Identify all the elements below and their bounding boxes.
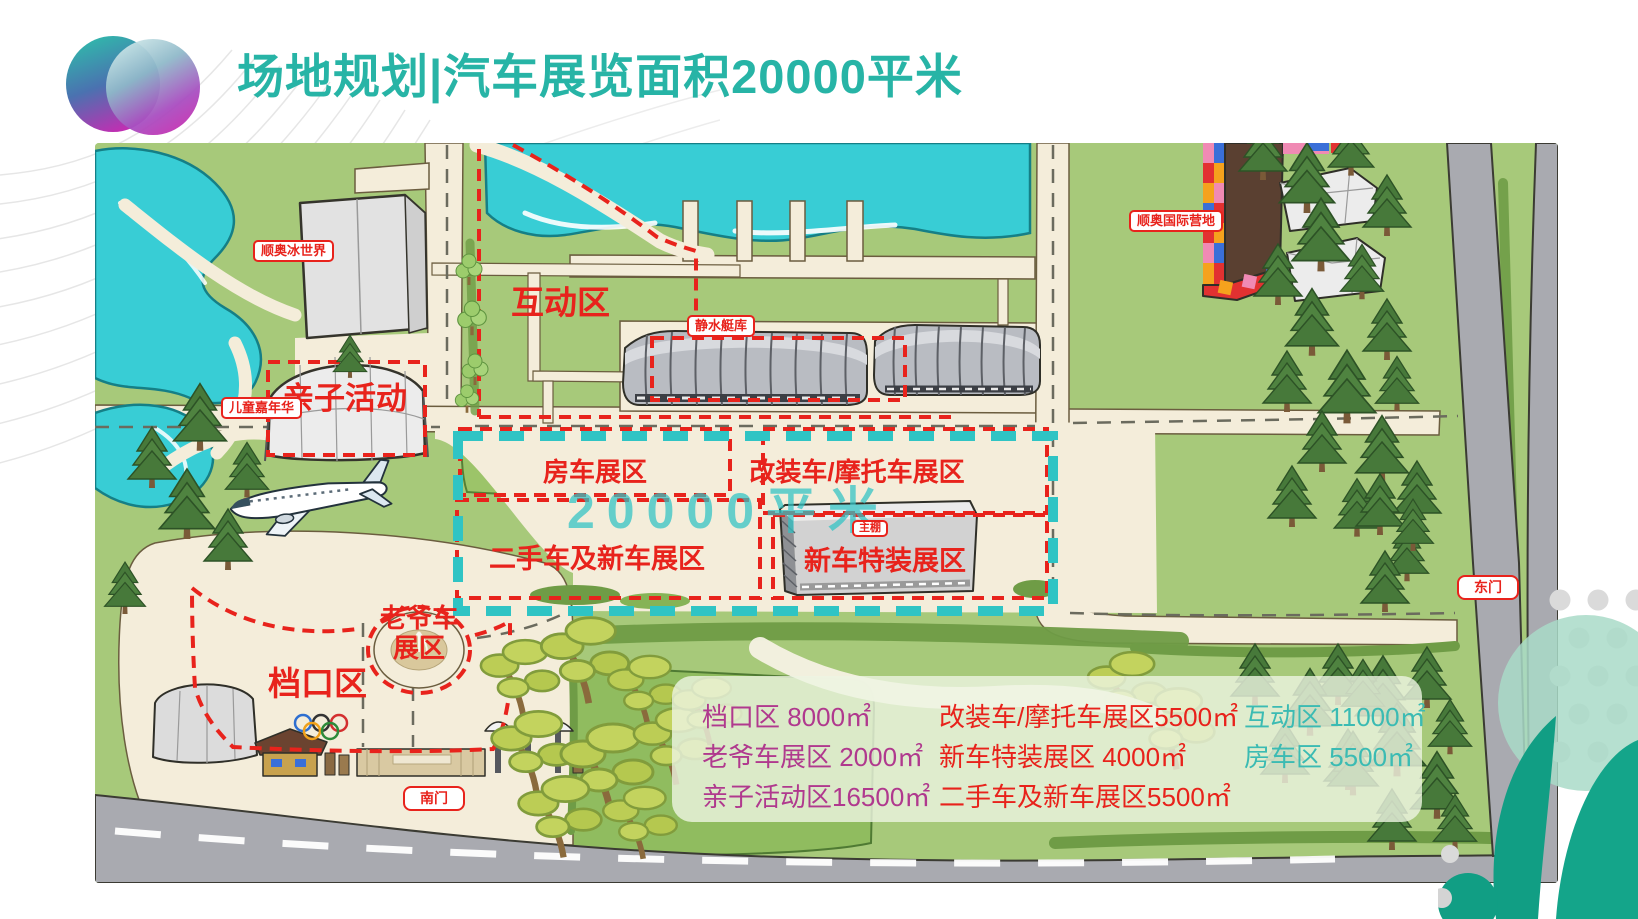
green-blob-1 (530, 585, 620, 605)
badge-intl-camp: 顺奥国际营地 (1129, 210, 1223, 232)
legend-item: 新车特装展区 4000㎡ (939, 737, 1238, 777)
badge-south-gate: 南门 (403, 786, 465, 811)
legend-column-teal: 互动区 11000㎡ 房车区 5500㎡ (1244, 697, 1426, 777)
badge-main-shed: 主棚 (852, 520, 888, 537)
badge-boathouse: 静水艇库 (687, 315, 755, 337)
page-title: 场地规划|汽车展览面积20000平米 (237, 38, 963, 107)
badge-ice-world: 顺奥冰世界 (253, 240, 334, 262)
legend-item: 亲子活动区16500㎡ (702, 777, 930, 817)
badge-east-gate: 东门 (1457, 575, 1519, 600)
zone-label-classic-car-line1: 老爷车 (380, 605, 458, 632)
legend-item: 档口区 8000㎡ (702, 697, 930, 737)
zone-label-modified-moto: 改装车/摩托车展区 (749, 459, 964, 486)
vertical-path-left (425, 143, 463, 417)
zone-label-classic-car-line2: 展区 (393, 635, 445, 662)
zone-label-rv: 房车展区 (543, 459, 647, 486)
brand-logo (66, 34, 216, 136)
legend-item: 互动区 11000㎡ (1244, 697, 1426, 737)
entrance-tent (153, 684, 257, 762)
road-right-edge (1528, 143, 1558, 883)
entrance-crates (325, 753, 335, 775)
logo-circle-light-magenta (106, 39, 200, 135)
legend-item: 老爷车展区 2000㎡ (702, 737, 930, 777)
legend-panel: 档口区 8000㎡ 老爷车展区 2000㎡ 亲子活动区16500㎡ 改装车/摩托… (672, 676, 1422, 822)
boathouse-left (623, 331, 867, 405)
zone-label-used-new: 二手车及新车展区 (489, 545, 705, 573)
zone-label-new-special: 新车特装展区 (804, 547, 966, 575)
zone-label-interactive: 互动区 (511, 286, 610, 321)
slide: { "header": { "title": "场地规划|汽车展览面积20000… (0, 0, 1638, 919)
site-map: 20000平米 互动区 亲子活动 房车展区 改装车/摩托车展区 二手车及新车展区… (95, 143, 1558, 883)
path-branch (355, 163, 429, 193)
legend-item: 改装车/摩托车展区5500㎡ (939, 697, 1238, 737)
legend-column-purple: 档口区 8000㎡ 老爷车展区 2000㎡ 亲子活动区16500㎡ (702, 697, 930, 817)
zone-label-stall: 档口区 (268, 667, 367, 702)
boathouse-right (874, 325, 1040, 395)
badge-kids-carnival: 儿童嘉年华 (221, 397, 302, 419)
ice-world-building (300, 195, 427, 338)
legend-column-red: 改装车/摩托车展区5500㎡ 新车特装展区 4000㎡ 二手车及新车展区5500… (939, 697, 1238, 817)
legend-item: 二手车及新车展区5500㎡ (939, 777, 1238, 817)
legend-item: 房车区 5500㎡ (1244, 737, 1426, 777)
